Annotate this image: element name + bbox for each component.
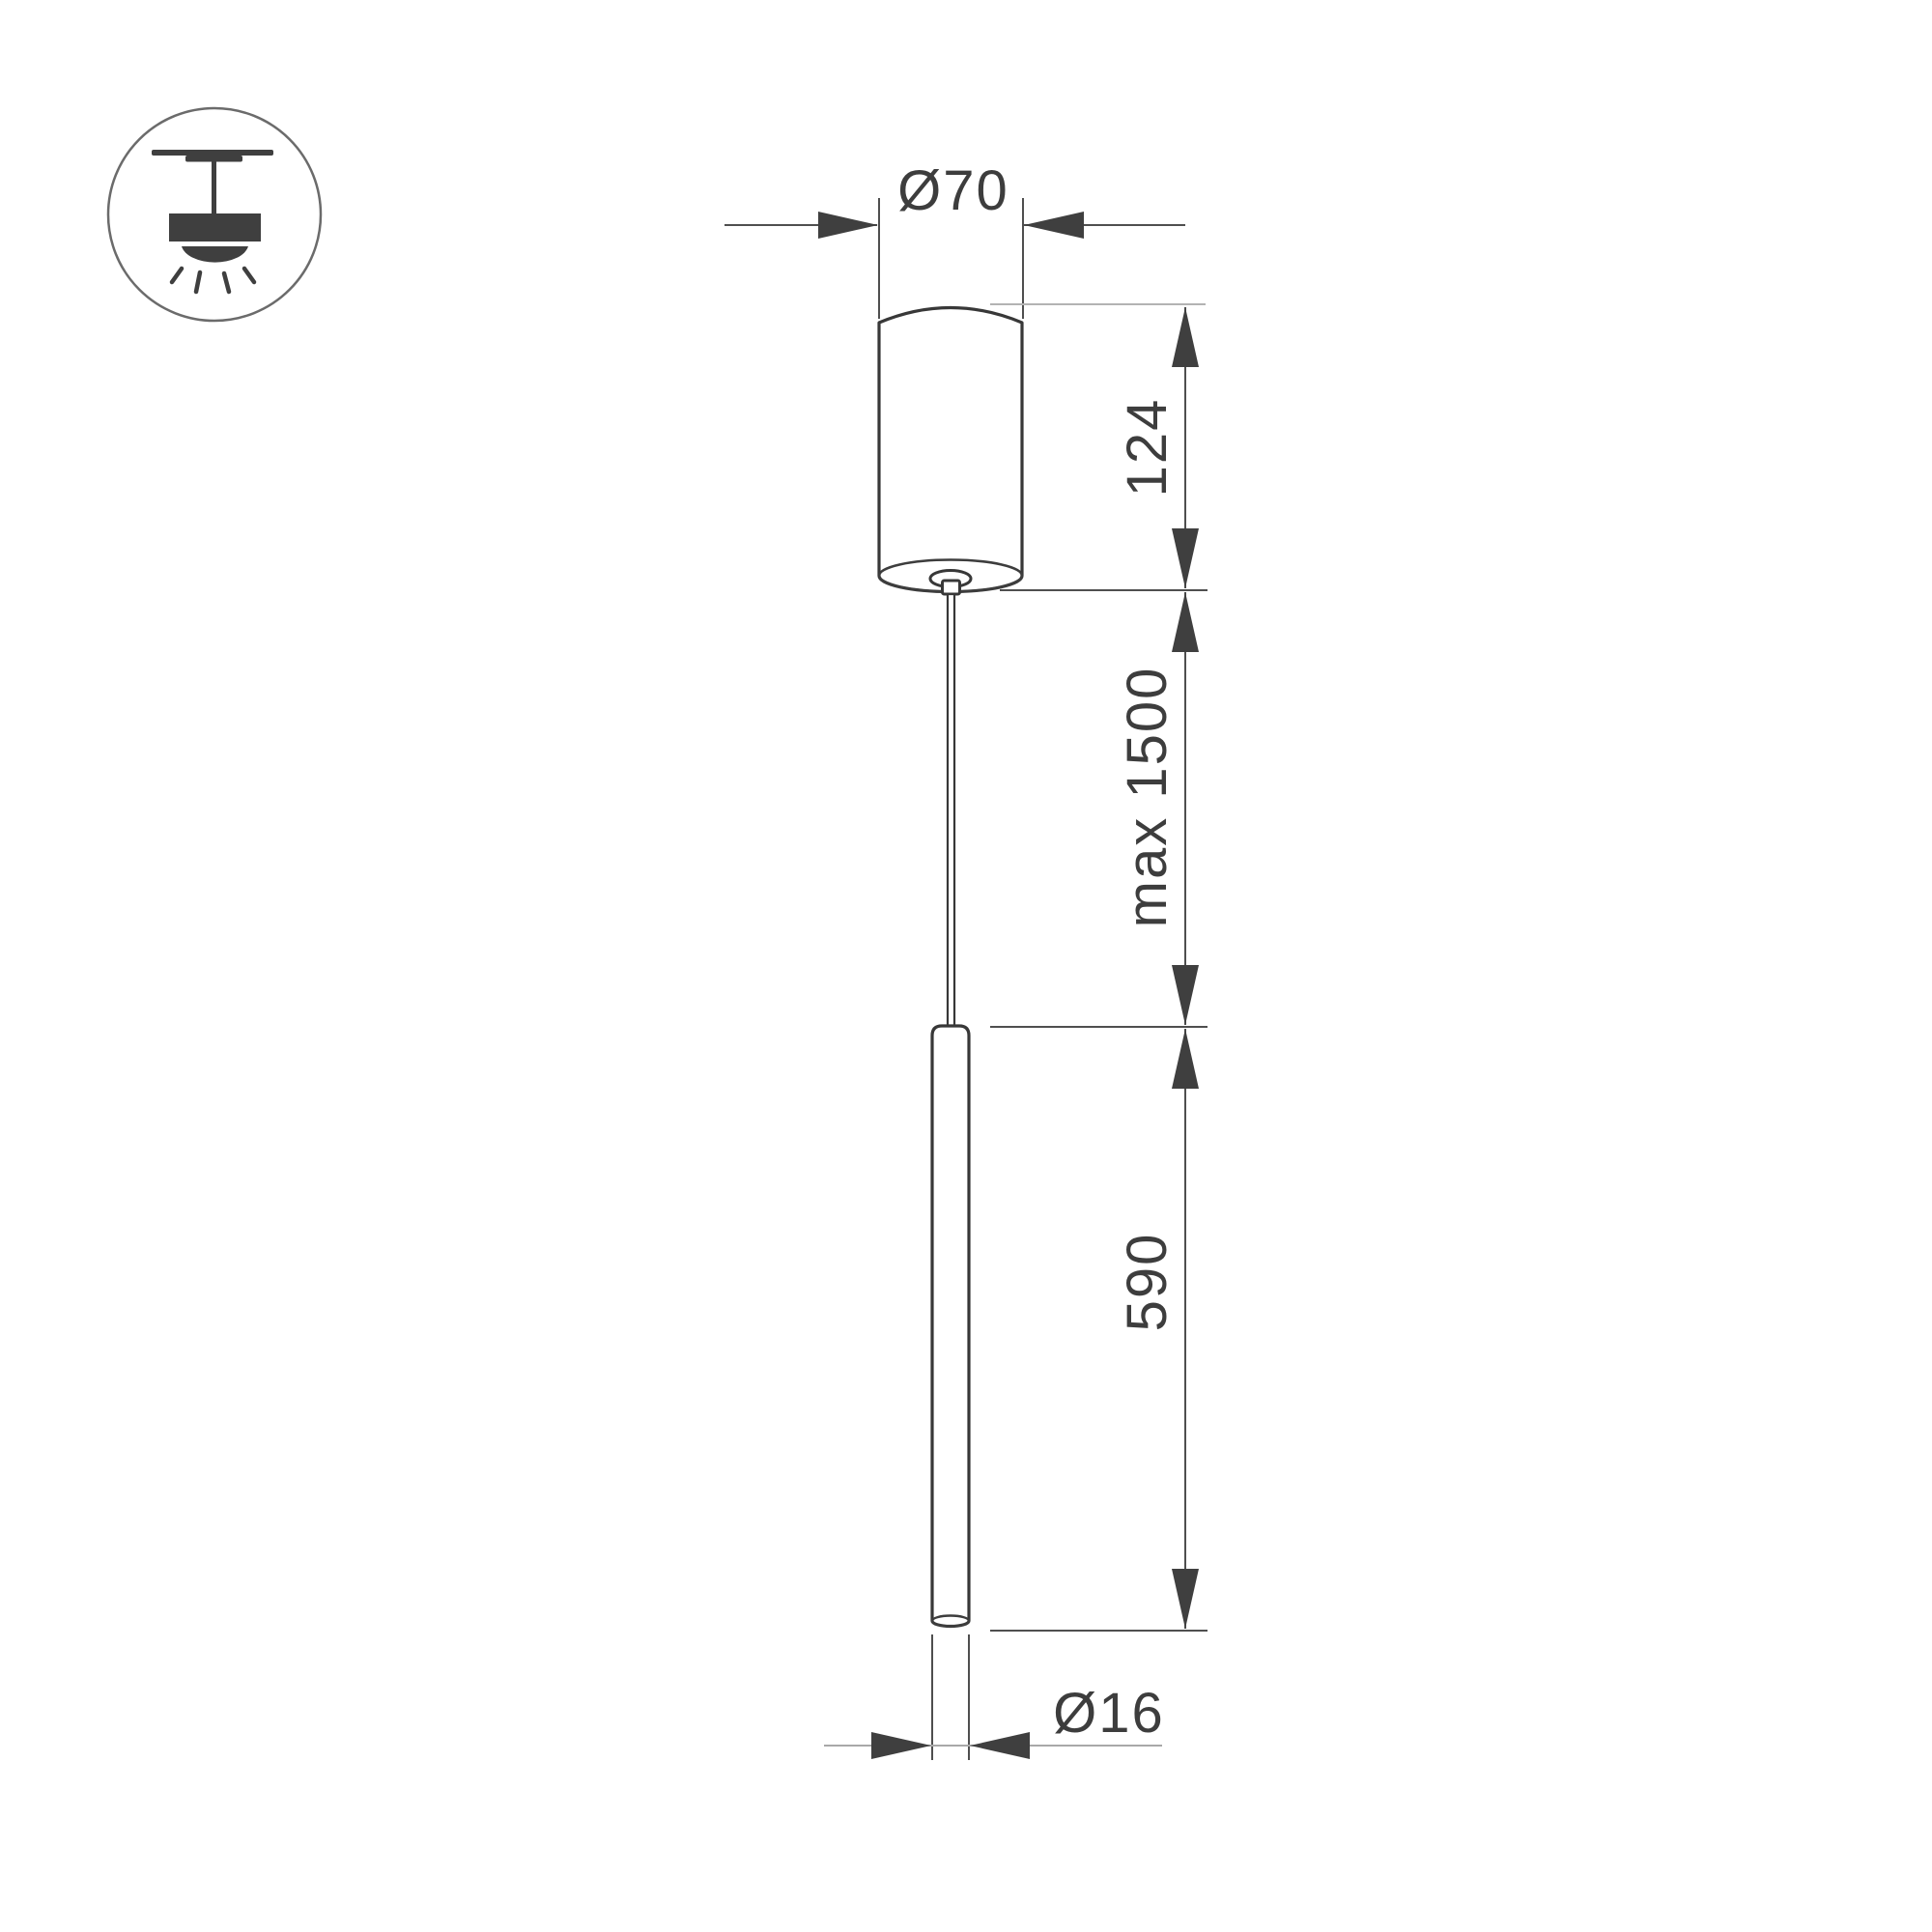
arrowhead-right — [871, 1732, 931, 1759]
wire-gland-collar — [943, 581, 960, 594]
dimension-canopy-diameter: Ø70 — [724, 159, 1185, 319]
arrowhead-down — [1172, 965, 1199, 1025]
canopy-body — [879, 308, 1022, 592]
canopy-drawing — [879, 308, 1022, 1027]
pendant-lamp-dimension-drawing: Ø70 124 max 1500 590 — [0, 0, 1932, 1932]
icon-lamp-body — [169, 213, 261, 241]
tube-lamp-drawing — [932, 1026, 969, 1627]
arrowhead-up — [1172, 307, 1199, 367]
tube-length-label: 590 — [1116, 1233, 1179, 1332]
light-ray — [224, 273, 229, 292]
icon-light-rays — [172, 269, 254, 292]
dimension-tube-diameter: Ø16 — [824, 1634, 1165, 1760]
canopy-diameter-label: Ø70 — [897, 159, 1009, 222]
dimension-suspension-length: max 1500 — [990, 592, 1207, 1027]
suspension-wire — [948, 594, 954, 1026]
arrowhead-down — [1172, 1569, 1199, 1629]
arrowhead-left — [1024, 212, 1084, 239]
arrowhead-down — [1172, 528, 1199, 588]
icon-mount-plate — [185, 156, 242, 162]
tube-body — [932, 1026, 969, 1627]
light-ray — [196, 272, 200, 292]
arrowhead-up — [1172, 1029, 1199, 1089]
ceiling-pendant-light-icon — [108, 108, 321, 321]
arrowhead-right — [818, 212, 878, 239]
suspension-length-label: max 1500 — [1116, 667, 1179, 928]
icon-ceiling-line — [152, 150, 273, 156]
light-ray — [172, 269, 182, 282]
arrowhead-up — [1172, 592, 1199, 652]
dimension-tube-length: 590 — [990, 1029, 1207, 1631]
light-ray — [244, 269, 254, 282]
canopy-height-label: 124 — [1116, 398, 1179, 497]
icon-light-dome — [182, 246, 248, 263]
tube-diameter-label: Ø16 — [1053, 1682, 1165, 1745]
arrowhead-left — [970, 1732, 1030, 1759]
technical-drawing-page: Ø70 124 max 1500 590 — [0, 0, 1932, 1932]
icon-suspension-stem — [212, 161, 216, 214]
